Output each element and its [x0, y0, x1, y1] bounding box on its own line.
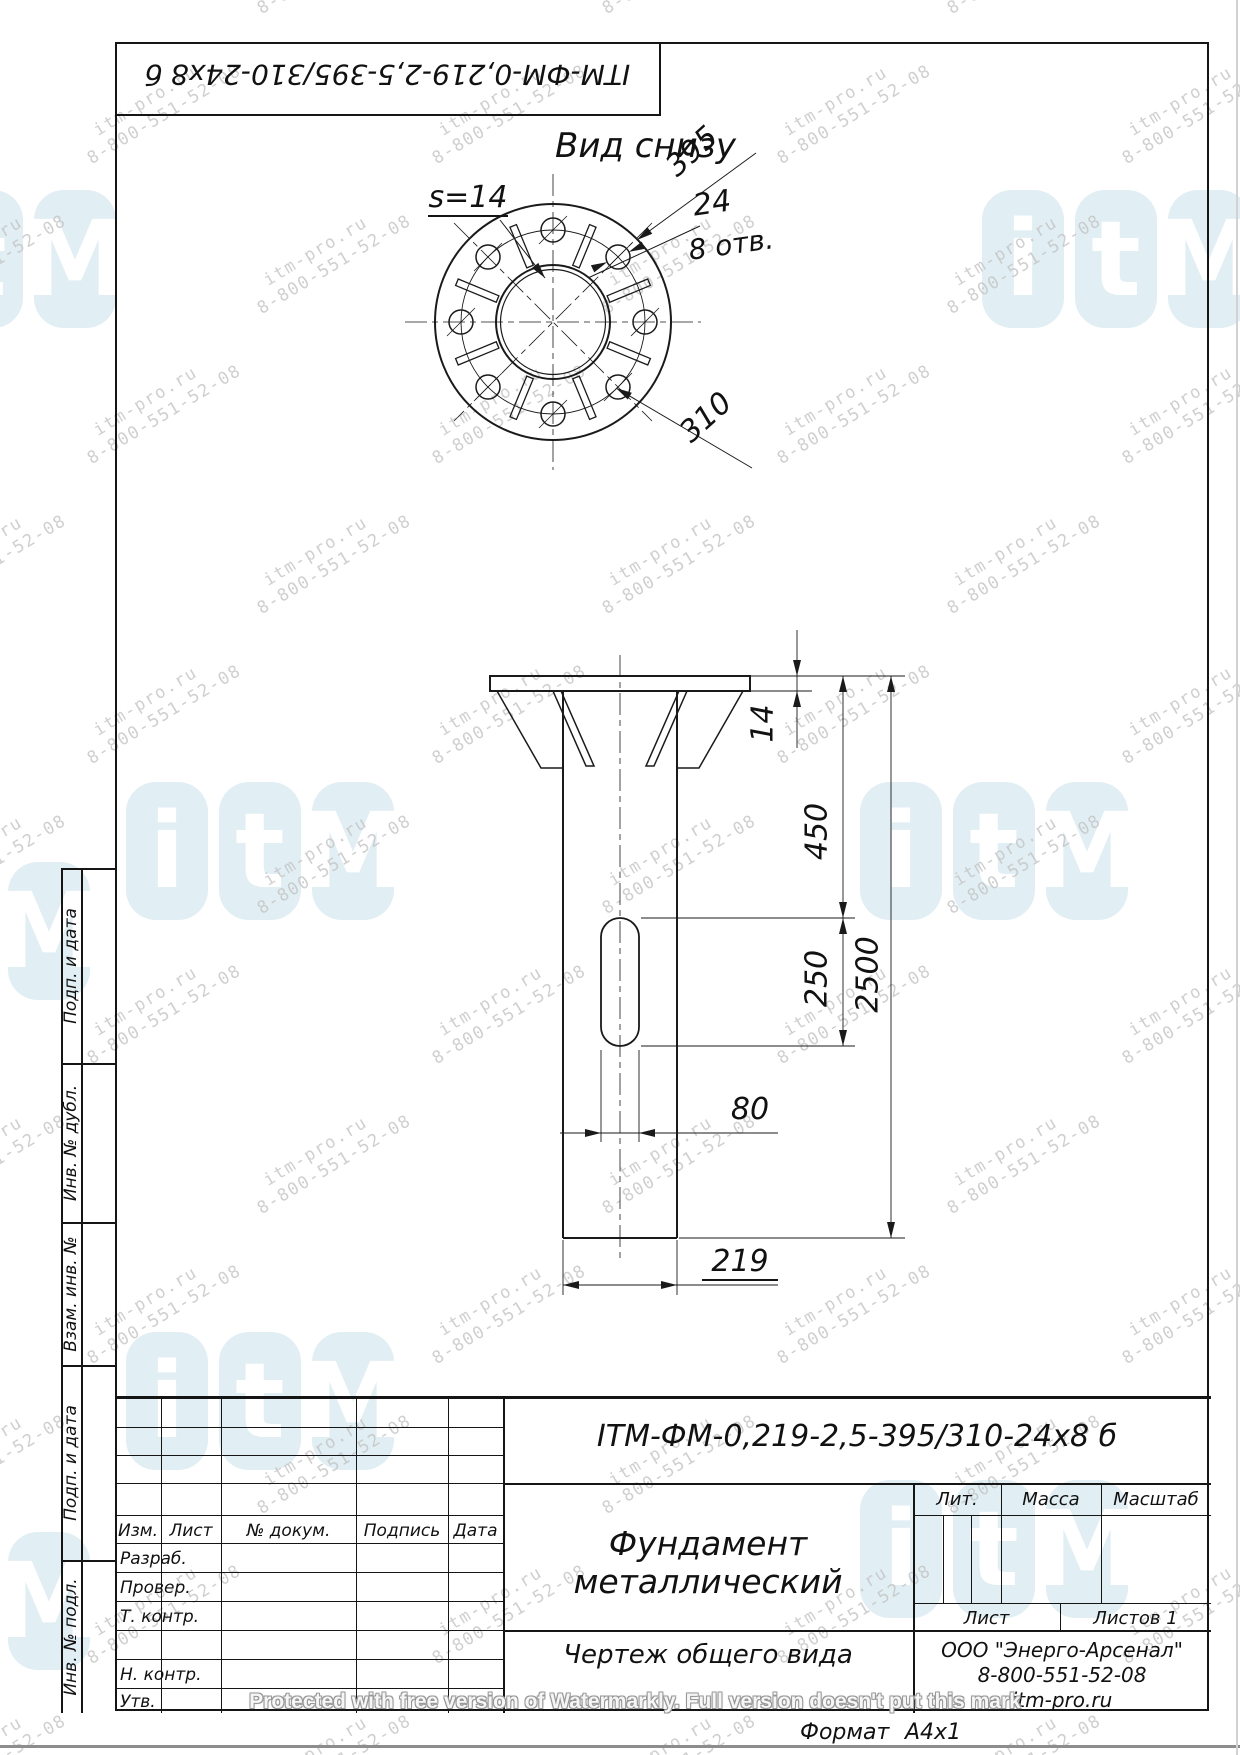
- designation: ITM-ФМ-0,219-2,5-395/310-24x8 б: [503, 1419, 1211, 1454]
- tb-line: [115, 1483, 503, 1484]
- col-izm: Изм.: [115, 1521, 161, 1541]
- page-bottom-edge: [0, 1745, 1240, 1748]
- tb-line: [115, 1630, 503, 1631]
- col-sign: Подпись: [356, 1521, 448, 1541]
- dim-80-label: 80: [722, 1092, 778, 1127]
- drawing-sheet: itMitMitMitMitMitMitMitM itm-pro.ru8-800…: [0, 0, 1240, 1755]
- dim-2500-label: 2500: [851, 933, 886, 1017]
- tb-line: [115, 1427, 503, 1428]
- tb-line: [913, 1603, 1211, 1604]
- part-name-line1: Фундамент: [503, 1524, 913, 1563]
- sheet-label: Лист: [913, 1608, 1060, 1629]
- tb-lit-subline: [971, 1515, 972, 1603]
- tb-col-line: [448, 1396, 449, 1713]
- tb-line: [115, 1572, 503, 1573]
- row-razrab: Разраб.: [120, 1549, 187, 1569]
- tb-col-line: [356, 1396, 357, 1713]
- col-date: Дата: [448, 1521, 503, 1541]
- col-doc: № докум.: [221, 1521, 356, 1541]
- dim-250-label: 250: [800, 947, 835, 1011]
- page-right-edge: [1236, 0, 1238, 1755]
- thickness-label: s=14: [428, 180, 508, 217]
- tb-line: [115, 1455, 503, 1456]
- tb-line: [913, 1515, 1211, 1516]
- titleblock-top-border: [115, 1396, 1211, 1399]
- watermarkly-protect-text: Protected with free version of Watermark…: [235, 1690, 1035, 1714]
- tb-line: [115, 1688, 503, 1689]
- part-name-line2: металлический: [503, 1562, 913, 1601]
- tb-line: [503, 1630, 1211, 1632]
- tb-line: [503, 1483, 1211, 1485]
- masshtab-header: Масштаб: [1101, 1489, 1211, 1510]
- row-prover: Провер.: [120, 1578, 191, 1598]
- tb-line: [115, 1659, 503, 1660]
- sheets-label: Листов 1: [1060, 1608, 1211, 1629]
- tb-line: [115, 1515, 503, 1516]
- row-tkontr: Т. контр.: [120, 1607, 199, 1627]
- company-name: ООО "Энерго-Арсенал": [913, 1638, 1211, 1662]
- tb-col-line: [221, 1396, 222, 1713]
- tb-line: [115, 1601, 503, 1602]
- dim-14-label: 14: [746, 692, 781, 756]
- format-label: Формат: [800, 1720, 889, 1745]
- front-view-geometry: [490, 630, 905, 1295]
- company-phone: 8-800-551-52-08: [913, 1663, 1211, 1687]
- dim-450-label: 450: [800, 800, 835, 864]
- tb-line: [115, 1543, 503, 1544]
- row-utv: Утв.: [120, 1692, 156, 1712]
- doc-type: Чертеж общего вида: [503, 1640, 913, 1670]
- format-value: A4x1: [905, 1720, 961, 1745]
- col-list: Лист: [161, 1521, 221, 1541]
- tb-lit-subline: [943, 1515, 944, 1603]
- dim-219-label: 219: [702, 1244, 778, 1281]
- row-nkontr: Н. контр.: [120, 1665, 201, 1685]
- massa-header: Масса: [1001, 1489, 1101, 1510]
- lit-header: Лит.: [913, 1489, 1001, 1510]
